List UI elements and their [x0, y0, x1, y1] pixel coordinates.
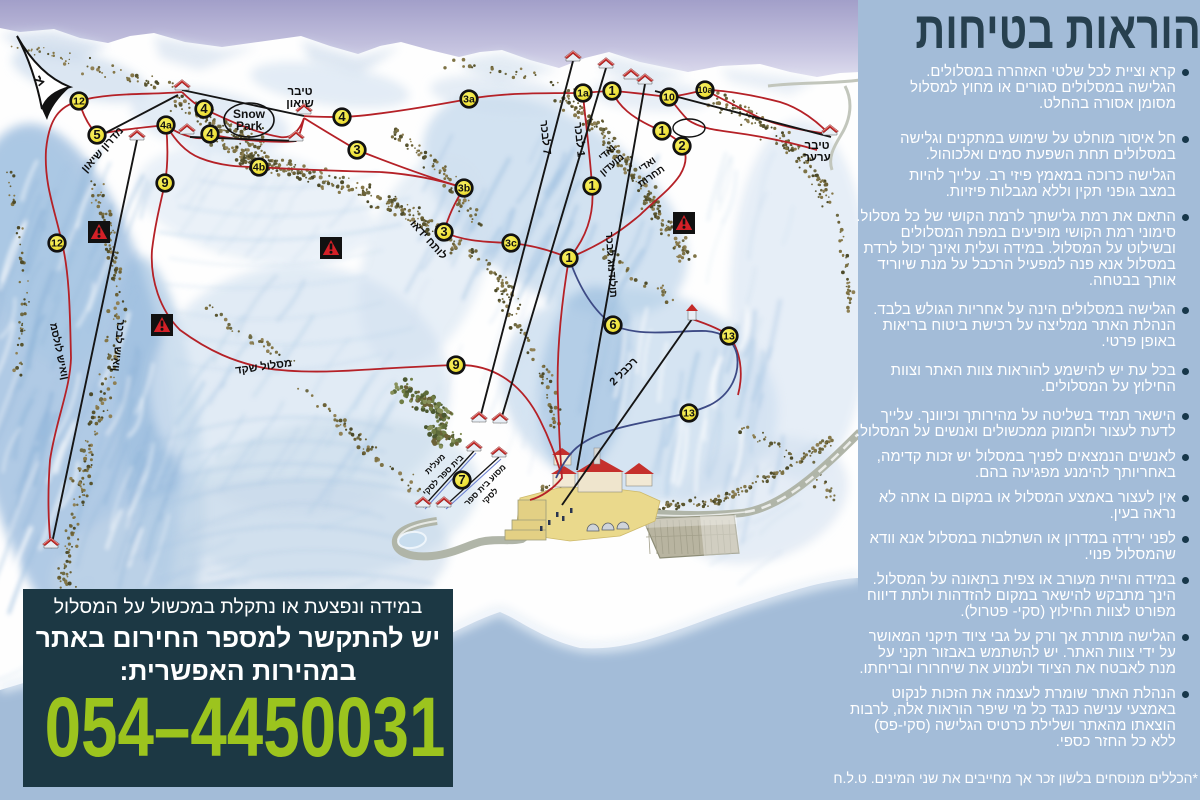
svg-text:5: 5	[93, 127, 100, 142]
svg-text:1a: 1a	[577, 87, 589, 99]
svg-text:10: 10	[663, 91, 675, 103]
svg-text:3b: 3b	[458, 182, 470, 194]
svg-text:4b: 4b	[253, 161, 265, 173]
svg-text:9: 9	[161, 175, 168, 190]
svg-text:4a: 4a	[160, 119, 172, 131]
svg-text:12: 12	[51, 237, 63, 249]
svg-text:1: 1	[565, 250, 572, 265]
svg-text:טיבר: טיבר	[804, 140, 829, 152]
svg-text:6: 6	[609, 317, 616, 332]
svg-text:שיאון: שיאון	[286, 98, 314, 110]
svg-text:13: 13	[683, 407, 695, 419]
svg-text:4: 4	[206, 126, 214, 141]
svg-text:3a: 3a	[463, 93, 475, 105]
svg-text:Park: Park	[236, 119, 262, 133]
svg-text:9: 9	[452, 357, 459, 372]
svg-text:1: 1	[588, 178, 595, 193]
svg-text:7: 7	[458, 472, 465, 487]
svg-text:1: 1	[658, 123, 665, 138]
svg-text:3: 3	[440, 224, 447, 239]
svg-text:3: 3	[353, 142, 360, 157]
svg-text:12: 12	[73, 95, 85, 107]
svg-text:3c: 3c	[505, 237, 517, 249]
svg-text:13: 13	[723, 330, 735, 342]
svg-text:טיבר: טיבר	[287, 86, 312, 98]
svg-text:2: 2	[678, 138, 685, 153]
svg-text:4: 4	[338, 109, 346, 124]
svg-text:4: 4	[200, 101, 208, 116]
svg-text:10a: 10a	[697, 85, 713, 95]
svg-text:1: 1	[608, 83, 615, 98]
svg-text:ערער: ערער	[803, 152, 830, 164]
